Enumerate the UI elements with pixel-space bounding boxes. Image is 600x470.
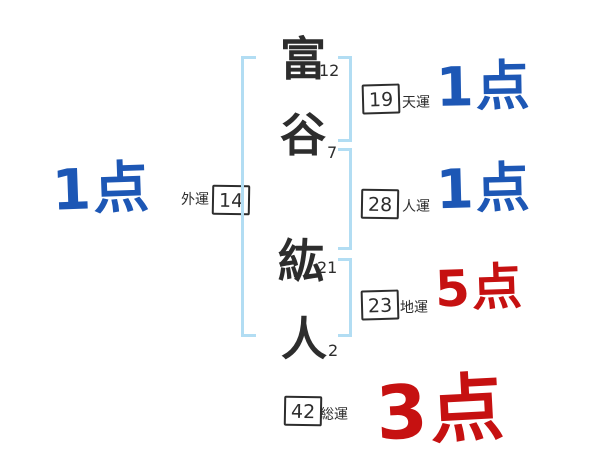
name-fortune-diagram: 1点 外運 14 富 12 谷 7 紘 21 人 2 19 天運 1点 28 人… — [0, 0, 600, 470]
jinun-value-box: 28 — [361, 189, 400, 220]
soun-score: 3点 — [374, 371, 507, 452]
name-char-1-strokes: 12 — [319, 63, 339, 79]
chiun-score: 5点 — [434, 261, 524, 314]
name-char-4-strokes: 2 — [328, 343, 338, 359]
jinun-bracket — [338, 148, 352, 250]
tenun-label: 天運 — [402, 96, 430, 110]
name-char-2: 谷 — [280, 112, 326, 158]
name-char-3-strokes: 21 — [317, 260, 337, 276]
chiun-value-box: 23 — [361, 290, 400, 321]
gaiun-score: 1点 — [51, 160, 152, 219]
name-char-2-strokes: 7 — [327, 145, 337, 161]
left-bracket — [241, 56, 256, 337]
tenun-bracket — [338, 56, 352, 142]
jinun-score: 1点 — [435, 161, 532, 217]
jinun-label: 人運 — [402, 200, 430, 214]
gaiun-label: 外運 — [181, 193, 209, 207]
soun-label: 総運 — [320, 408, 348, 422]
tenun-score: 1点 — [436, 59, 533, 115]
soun-value-box: 42 — [284, 396, 323, 427]
tenun-value-box: 19 — [362, 84, 401, 115]
name-char-4: 人 — [281, 316, 327, 362]
chiun-bracket — [338, 258, 352, 337]
chiun-label: 地運 — [400, 301, 428, 315]
